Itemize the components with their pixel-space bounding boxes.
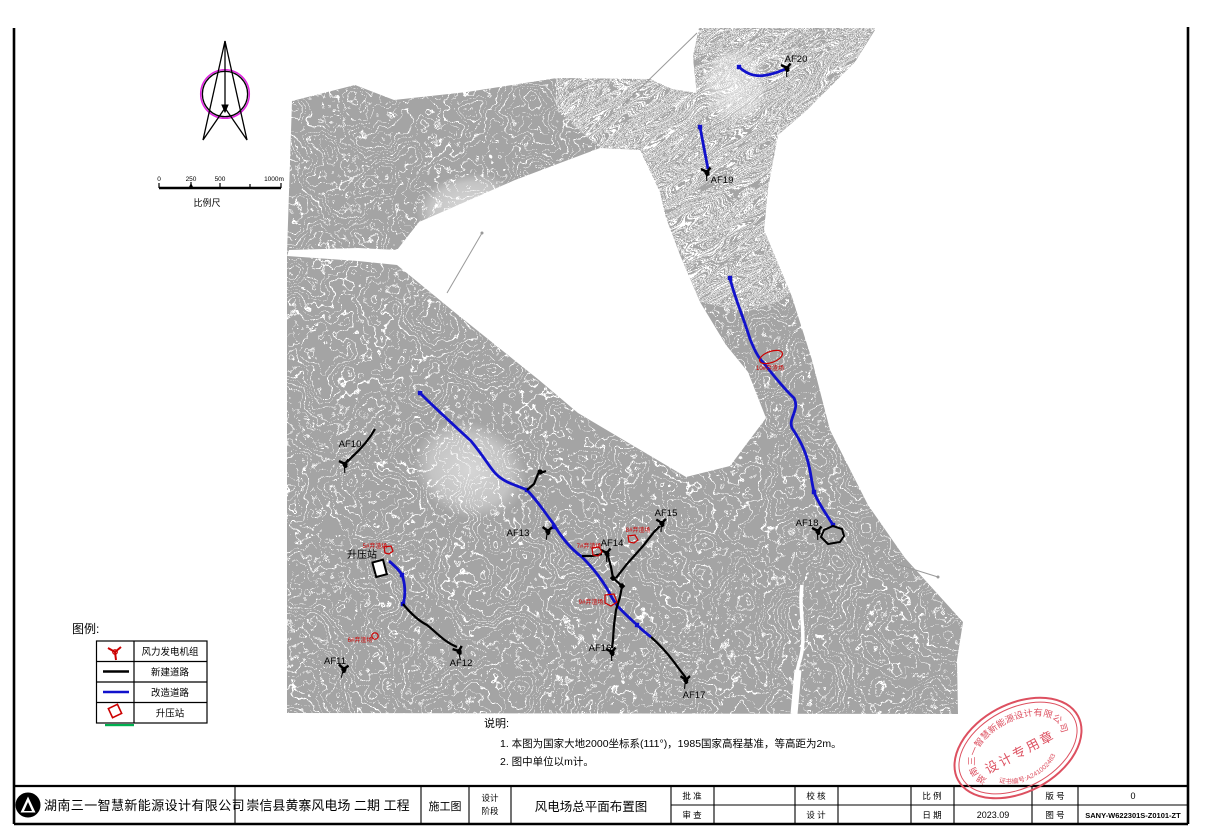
svg-text:AF11: AF11 — [324, 656, 346, 667]
svg-text:风电场总平面布置图: 风电场总平面布置图 — [535, 800, 648, 814]
svg-text:版 号: 版 号 — [1045, 791, 1064, 801]
svg-text:SANY-W622301S-Z0101-ZT: SANY-W622301S-Z0101-ZT — [1085, 811, 1181, 820]
svg-text:改造道路: 改造道路 — [151, 687, 190, 699]
svg-text:AF10: AF10 — [339, 439, 362, 450]
svg-text:8#弃渣场: 8#弃渣场 — [626, 526, 651, 534]
svg-text:2. 图中单位以m计。: 2. 图中单位以m计。 — [500, 755, 594, 768]
svg-text:图例:: 图例: — [72, 622, 99, 636]
svg-text:250: 250 — [186, 176, 197, 183]
svg-text:9#弃渣场: 9#弃渣场 — [579, 598, 604, 606]
svg-text:AF15: AF15 — [655, 508, 678, 519]
svg-text:AF18: AF18 — [796, 518, 819, 529]
svg-text:阶段: 阶段 — [481, 806, 499, 816]
svg-text:湖南三一智慧新能源设计有限公司: 湖南三一智慧新能源设计有限公司 — [44, 798, 245, 813]
svg-text:批 准: 批 准 — [682, 791, 702, 801]
svg-text:AF20: AF20 — [785, 54, 808, 65]
svg-text:500: 500 — [215, 176, 226, 183]
svg-text:比 例: 比 例 — [922, 791, 941, 801]
svg-text:5#弃渣场: 5#弃渣场 — [363, 542, 388, 550]
svg-text:说明:: 说明: — [484, 716, 509, 730]
svg-text:设 计: 设 计 — [806, 810, 826, 820]
svg-text:0: 0 — [157, 176, 161, 183]
svg-text:AF13: AF13 — [507, 528, 530, 539]
svg-text:日 期: 日 期 — [922, 810, 941, 820]
svg-text:AF14: AF14 — [601, 538, 624, 549]
svg-text:升压站: 升压站 — [156, 708, 185, 720]
svg-text:AF17: AF17 — [683, 690, 706, 701]
svg-text:崇信县黄寨风电场 二期 工程: 崇信县黄寨风电场 二期 工程 — [246, 798, 409, 813]
svg-text:设计: 设计 — [481, 793, 499, 803]
svg-text:校 核: 校 核 — [806, 791, 826, 801]
svg-text:施工图: 施工图 — [429, 800, 462, 813]
svg-text:6#弃渣场: 6#弃渣场 — [348, 636, 373, 644]
svg-text:10#弃渣场: 10#弃渣场 — [756, 364, 784, 372]
svg-text:AF12: AF12 — [450, 658, 473, 669]
svg-text:比例尺: 比例尺 — [193, 197, 220, 208]
svg-text:1. 本图为国家大地2000坐标系(111°)，1985国家: 1. 本图为国家大地2000坐标系(111°)，1985国家高程基准，等高距为2… — [500, 737, 842, 750]
svg-text:新建道路: 新建道路 — [151, 667, 190, 679]
svg-text:风力发电机组: 风力发电机组 — [141, 646, 199, 658]
svg-text:0: 0 — [1130, 791, 1135, 801]
svg-text:2023.09: 2023.09 — [977, 810, 1010, 820]
svg-text:审 查: 审 查 — [682, 810, 702, 820]
svg-text:7#弃渣场: 7#弃渣场 — [577, 542, 602, 550]
svg-text:图 号: 图 号 — [1045, 810, 1064, 820]
svg-text:AF16: AF16 — [589, 643, 612, 654]
svg-text:AF19: AF19 — [711, 175, 734, 186]
svg-text:1000m: 1000m — [264, 176, 284, 183]
